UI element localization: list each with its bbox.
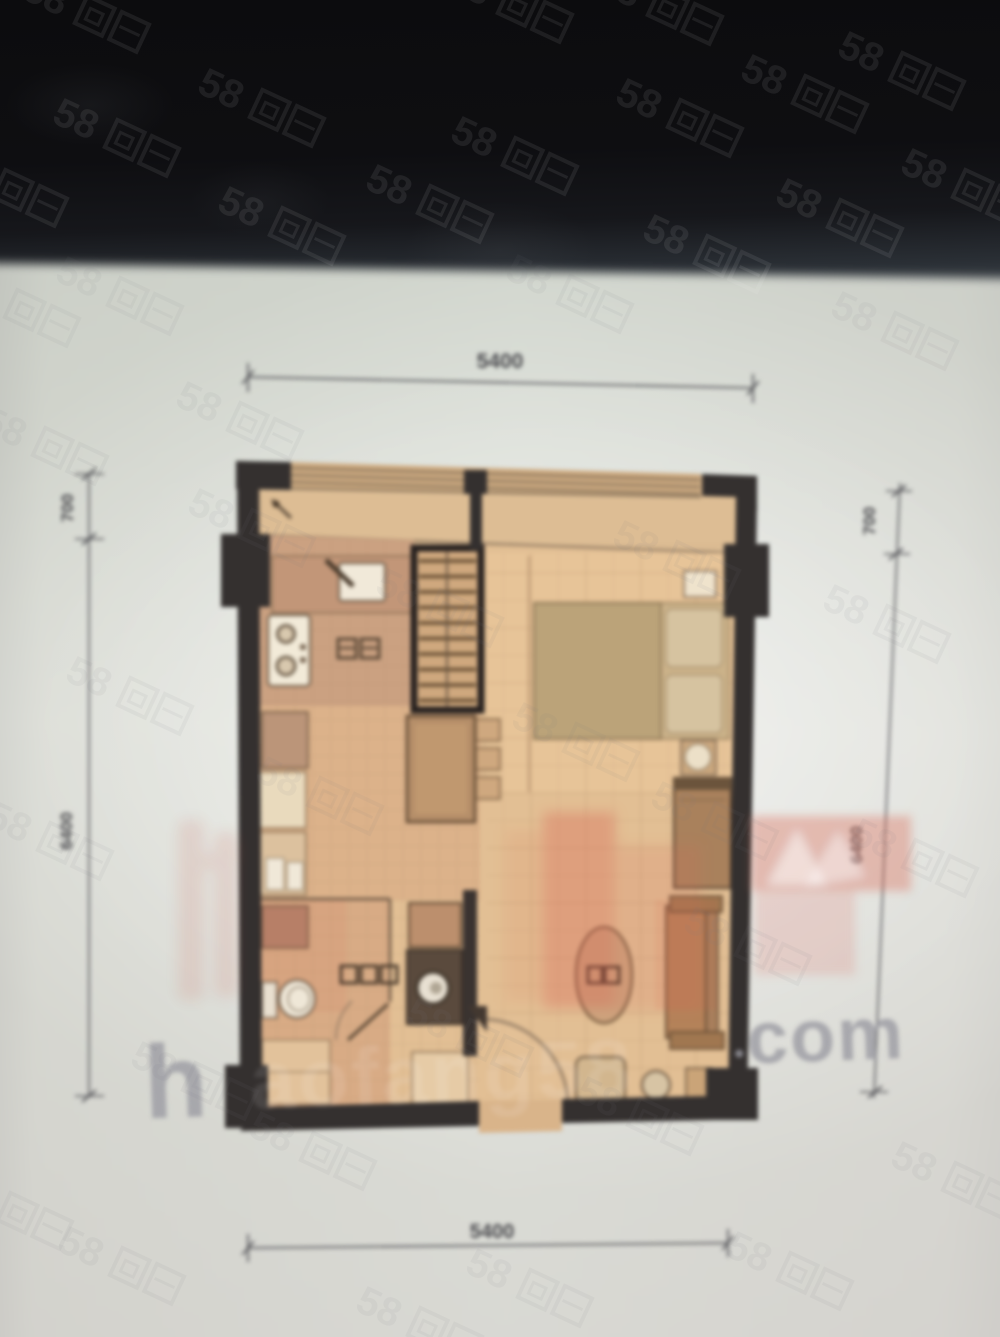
svg-text:58: 58 xyxy=(607,512,666,571)
svg-text:58: 58 xyxy=(192,60,251,119)
svg-text:58: 58 xyxy=(825,283,884,342)
svg-text:58: 58 xyxy=(125,1033,184,1092)
svg-text:58: 58 xyxy=(885,1133,944,1192)
svg-text:58: 58 xyxy=(400,990,459,1049)
svg-text:58: 58 xyxy=(645,773,704,832)
svg-text:58: 58 xyxy=(60,648,119,707)
svg-text:58: 58 xyxy=(52,1218,111,1277)
svg-text:58: 58 xyxy=(500,246,559,305)
svg-text:58: 58 xyxy=(250,748,309,807)
svg-text:58: 58 xyxy=(212,178,271,237)
svg-text:58: 58 xyxy=(243,1103,302,1162)
svg-text:58: 58 xyxy=(506,694,565,753)
svg-text:58: 58 xyxy=(895,140,954,199)
svg-text:58: 58 xyxy=(460,1240,519,1299)
svg-text:58: 58 xyxy=(50,248,109,307)
svg-text:58: 58 xyxy=(350,1278,409,1337)
svg-text:58: 58 xyxy=(370,560,429,619)
svg-text:58: 58 xyxy=(182,480,241,539)
svg-text:58: 58 xyxy=(678,898,737,957)
svg-text:58: 58 xyxy=(360,156,419,215)
svg-text:58: 58 xyxy=(770,170,829,229)
svg-text:58: 58 xyxy=(445,108,504,167)
svg-text:58: 58 xyxy=(170,373,229,432)
svg-text:58: 58 xyxy=(0,793,39,852)
svg-text:58: 58 xyxy=(845,810,904,869)
svg-text:58: 58 xyxy=(735,46,794,105)
svg-text:58: 58 xyxy=(47,90,106,149)
svg-text:58: 58 xyxy=(0,260,6,319)
svg-text:58: 58 xyxy=(440,0,499,15)
svg-text:58: 58 xyxy=(17,0,76,25)
svg-text:58: 58 xyxy=(590,0,649,17)
svg-text:58: 58 xyxy=(0,398,34,457)
svg-text:58: 58 xyxy=(720,1223,779,1282)
svg-text:58: 58 xyxy=(610,70,669,129)
svg-text:58: 58 xyxy=(817,576,876,635)
svg-text:58: 58 xyxy=(637,206,696,265)
svg-text:58: 58 xyxy=(570,1068,629,1127)
svg-text:58: 58 xyxy=(832,23,891,82)
